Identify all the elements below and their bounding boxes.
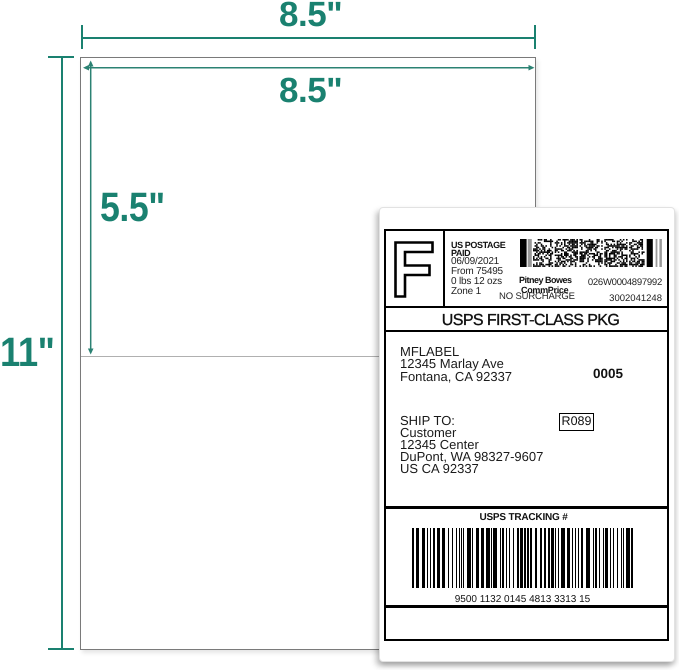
svg-text:5.5": 5.5"	[100, 184, 165, 228]
svg-text:11": 11"	[0, 329, 55, 373]
